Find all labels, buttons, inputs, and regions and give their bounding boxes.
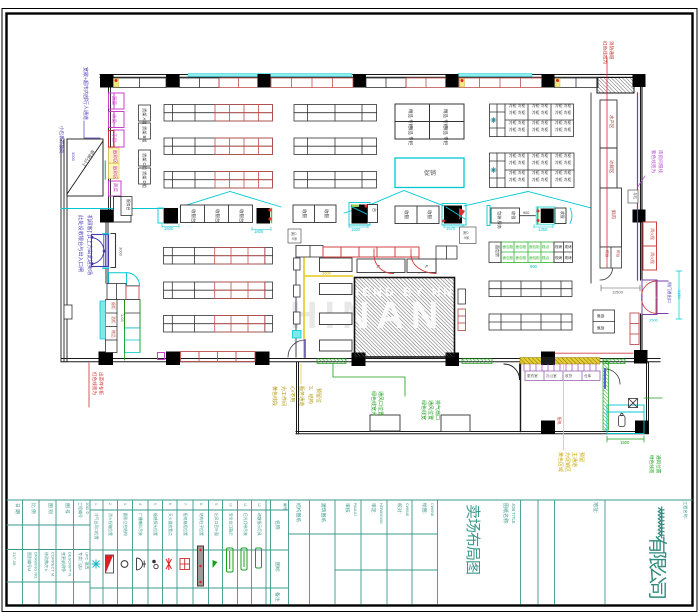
svg-text:黄色区域: 黄色区域: [557, 452, 564, 472]
svg-text:审核:: 审核:: [344, 503, 351, 514]
svg-text:冷柜 冷柜: 冷柜 冷柜: [532, 160, 548, 165]
svg-text:JOB TITLE: JOB TITLE: [511, 503, 516, 524]
svg-text:冷柜 冷柜: 冷柜 冷柜: [532, 177, 548, 182]
svg-text:1350: 1350: [538, 227, 548, 232]
svg-text:主通道: 主通道: [571, 452, 578, 467]
svg-text:灭火器放置点: 灭火器放置点: [168, 513, 173, 536]
svg-text:建筑图纸.: 建筑图纸.: [320, 503, 327, 524]
svg-text:蔬菜: 蔬菜: [111, 96, 118, 105]
svg-text:地址:: 地址:: [592, 502, 599, 513]
svg-text:11500: 11500: [612, 290, 624, 295]
svg-text:审定:: 审定:: [370, 503, 377, 514]
svg-text:收银: 收银: [560, 211, 565, 219]
svg-text:日光灯带吊装: 日光灯带吊装: [243, 513, 248, 536]
svg-text:冷柜 冷柜: 冷柜 冷柜: [509, 170, 525, 175]
svg-text:冷柜 冷柜: 冷柜 冷柜: [532, 153, 548, 158]
svg-text:比 例: 比 例: [30, 503, 37, 514]
svg-text:卖场布局图: 卖场布局图: [464, 504, 481, 574]
svg-text:9.: 9.: [214, 503, 218, 506]
svg-text:机顾客['.]1上方由此进卖场: 机顾客['.]1上方由此进卖场: [86, 215, 94, 275]
svg-text:现烤: 现烤: [565, 244, 573, 249]
svg-text:消火栓箱位置: 消火栓箱位置: [108, 513, 113, 536]
svg-text:服务通道: 服务通道: [298, 386, 305, 406]
svg-text:名称: 名称: [274, 520, 281, 530]
svg-text:服务台: 服务台: [126, 199, 131, 211]
svg-text:此处设收银台与出入口闸: 此处设收银台与出入口闸: [77, 215, 85, 272]
svg-text:红色线宽为: 红色线宽为: [91, 372, 98, 395]
svg-text:收银台: 收银台: [214, 209, 221, 223]
svg-text:鲜肉: 鲜肉: [610, 210, 617, 219]
svg-text:900: 900: [530, 264, 538, 269]
svg-text:消防通道: 消防通道: [608, 41, 615, 60]
svg-text:广播喇叭吊装: 广播喇叭吊装: [138, 513, 143, 536]
svg-text:修改数次 b.: 修改数次 b.: [44, 552, 50, 572]
svg-text:3.: 3.: [123, 503, 127, 506]
svg-text:黄色线段: 黄色线段: [271, 386, 278, 406]
svg-text:疏散指示灯具: 疏散指示灯具: [257, 513, 262, 536]
svg-text:图标: 图标: [274, 562, 281, 572]
svg-text:预留: 预留: [578, 452, 585, 462]
svg-text:绿色线宽: 绿色线宽: [420, 400, 427, 420]
svg-text:冷气出风口位置: 冷气出风口位置: [94, 513, 99, 540]
svg-text:3000: 3000: [71, 152, 76, 162]
svg-text:水产区: 水产区: [608, 115, 615, 129]
svg-text:为工作间: 为工作间: [280, 386, 287, 406]
svg-text:900: 900: [523, 211, 529, 215]
svg-text:面包柜: 面包柜: [516, 244, 527, 249]
svg-text:称台: 称台: [605, 250, 610, 258]
svg-text:冷柜 冷柜: 冷柜 冷柜: [532, 120, 548, 125]
svg-text:货架 B组: 货架 B组: [141, 126, 148, 143]
svg-text:面包柜: 面包柜: [503, 244, 514, 249]
svg-text:现烤: 现烤: [555, 244, 563, 249]
svg-text:精品 专柜: 精品 专柜: [407, 126, 414, 146]
svg-text:蔬菜: 蔬菜: [112, 183, 119, 192]
svg-text:图别编号M.: 图别编号M.: [27, 552, 33, 572]
svg-text:收银台: 收银台: [190, 209, 197, 223]
svg-text:面包柜: 面包柜: [516, 255, 527, 260]
svg-text:心/不用: 心/不用: [289, 386, 296, 402]
svg-text:1500: 1500: [649, 318, 659, 323]
svg-text:3150: 3150: [677, 290, 682, 300]
svg-text:仓库: 仓库: [584, 373, 592, 378]
svg-text:CWKNE: CWKNE: [405, 503, 409, 517]
svg-text:通风口位置: 通风口位置: [377, 391, 384, 416]
svg-text:8.: 8.: [199, 503, 203, 506]
svg-text:收银: 收银: [426, 210, 433, 219]
svg-text:紫色线宽为: 紫色线宽为: [650, 150, 657, 173]
svg-text:冷柜 冷柜: 冷柜 冷柜: [555, 103, 571, 108]
svg-text:图 别: 图 别: [47, 503, 54, 514]
svg-text:1.: 1.: [94, 503, 98, 506]
svg-text:3、结构: 3、结构: [307, 386, 314, 404]
svg-text:烟柜: 烟柜: [111, 302, 116, 310]
svg-text:绿色线宽为: 绿色线宽为: [370, 391, 377, 416]
svg-text:11: 11: [243, 503, 247, 507]
svg-text:冷柜 冷柜: 冷柜 冷柜: [555, 177, 571, 182]
svg-text:现烤: 现烤: [565, 255, 573, 260]
svg-text:JOB ②: JOB ②: [85, 502, 90, 515]
svg-text:货架 D组: 货架 D组: [141, 171, 148, 188]
svg-text:2.: 2.: [108, 503, 112, 506]
svg-text:酒柜: 酒柜: [111, 316, 116, 324]
svg-text:精品 专柜: 精品 专柜: [442, 126, 449, 146]
svg-text:HEFANGXIN: HEFANGXIN: [379, 503, 383, 524]
svg-text:排气扇口: 排气扇口: [434, 400, 441, 420]
svg-text:3000: 3000: [119, 247, 124, 257]
svg-text:收银: 收银: [301, 209, 308, 218]
svg-text:货架 C组: 货架 C组: [141, 153, 148, 170]
svg-text:通风位置: 通风位置: [427, 400, 434, 420]
svg-text:散称区: 散称区: [112, 166, 119, 180]
svg-text:6.: 6.: [168, 503, 172, 506]
svg-text:宽0: 宽0: [291, 231, 297, 236]
svg-text:货架 A组: 货架 A组: [141, 108, 148, 125]
svg-text:冷柜 冷柜: 冷柜 冷柜: [509, 127, 525, 132]
svg-text:小包裹存放处: 小包裹存放处: [58, 126, 65, 154]
svg-text:冷柜 冷柜: 冷柜 冷柜: [509, 177, 525, 182]
svg-text:图纸名称:: 图纸名称:: [502, 503, 509, 524]
svg-text:DRAWING NO.: DRAWING NO.: [34, 552, 39, 579]
svg-text:冷柜 冷柜: 冷柜 冷柜: [509, 110, 525, 115]
svg-text:5.: 5.: [153, 503, 157, 506]
svg-text:冷柜 冷柜: 冷柜 冷柜: [555, 120, 571, 125]
svg-text:CORRECT M.: CORRECT M.: [51, 552, 56, 577]
svg-text:散称区: 散称区: [112, 150, 119, 164]
svg-text:1500: 1500: [620, 440, 630, 445]
svg-text:糕点: 糕点: [542, 255, 550, 260]
svg-text:备注: 备注: [274, 592, 281, 602]
svg-text:↗: ↗: [424, 264, 428, 270]
svg-text:冷柜 冷柜: 冷柜 冷柜: [555, 160, 571, 165]
svg-text:糕点: 糕点: [542, 244, 550, 249]
svg-text:********有限公司: ********有限公司: [646, 506, 668, 600]
svg-text:工程编号: 工程编号: [78, 502, 84, 518]
svg-text:绘图:: 绘图:: [421, 503, 428, 514]
svg-text:面包柜: 面包柜: [529, 244, 540, 249]
svg-text:冷柜 冷柜: 冷柜 冷柜: [555, 170, 571, 175]
svg-text:台: 台: [372, 208, 378, 212]
svg-text:.9米: .9米: [291, 236, 298, 241]
svg-text:红色线宽为: 红色线宽为: [602, 41, 609, 64]
svg-text:库房间隔线: 库房间隔线: [657, 150, 664, 173]
svg-text:冷柜 冷柜: 冷柜 冷柜: [555, 110, 571, 115]
svg-text:更衣室: 更衣室: [527, 373, 538, 378]
svg-text:DESCRIPT N.: DESCRIPT N.: [68, 552, 73, 577]
svg-text:包装 服务: 包装 服务: [496, 211, 503, 230]
svg-text:冷柜 冷柜: 冷柜 冷柜: [532, 103, 548, 108]
svg-text:售饼: 售饼: [597, 314, 605, 319]
svg-text:出菜样专柜: 出菜样专柜: [98, 372, 105, 395]
svg-text:侧门进出口: 侧门进出口: [666, 282, 673, 303]
svg-text:消火栓: 消火栓: [650, 252, 656, 264]
svg-text:收银: 收银: [403, 210, 410, 219]
svg-text:促销: 促销: [424, 169, 436, 177]
svg-text:存包: 存包: [633, 193, 638, 200]
svg-text:消火栓: 消火栓: [650, 228, 656, 240]
svg-text:宽敞+超市内部行人通道: 宽敞+超市内部行人通道: [82, 67, 89, 120]
svg-text:结构柱子位置: 结构柱子位置: [199, 513, 204, 536]
svg-text:配电箱柜位置: 配电箱柜位置: [183, 513, 188, 536]
svg-text:冷柜 冷柜: 冷柜 冷柜: [532, 110, 548, 115]
svg-text:安全出口指示: 安全出口指示: [229, 513, 234, 536]
svg-text:4.: 4.: [138, 503, 142, 506]
svg-text:日 期: 日 期: [14, 503, 20, 514]
svg-text:.9米: .9米: [463, 235, 470, 240]
svg-text:结构图纸.: 结构图纸.: [295, 503, 302, 524]
svg-text:面包柜: 面包柜: [529, 255, 540, 260]
svg-text:校对:: 校对:: [396, 503, 403, 514]
svg-text:12: 12: [257, 503, 261, 507]
svg-text:圆形立柱结构: 圆形立柱结构: [123, 513, 128, 536]
svg-text:办公室: 办公室: [546, 373, 557, 378]
svg-text:烟感探头位置: 烟感探头位置: [153, 513, 158, 536]
svg-text:10: 10: [229, 503, 233, 507]
svg-text:为促销区: 为促销区: [564, 452, 571, 472]
svg-text:专卖门店2: 专卖门店2: [78, 552, 84, 571]
svg-text:面包房: 面包房: [495, 245, 501, 257]
svg-text:配电: 配电: [557, 417, 562, 425]
svg-text:UPC 批改: UPC 批改: [85, 552, 91, 570]
svg-text:冷柜 冷柜: 冷柜 冷柜: [555, 127, 571, 132]
svg-text:图 号: 图 号: [64, 503, 70, 514]
svg-text:冷柜 冷柜: 冷柜 冷柜: [532, 170, 548, 175]
svg-text:收货: 收货: [565, 373, 573, 378]
svg-text:冰鲜区: 冰鲜区: [608, 160, 615, 174]
svg-text:冷柜 冷柜: 冷柜 冷柜: [509, 153, 525, 158]
svg-text:出风口百叶窗: 出风口百叶窗: [214, 513, 219, 536]
svg-text:CWKNE: CWKNE: [430, 503, 434, 517]
svg-text:冷柜 冷柜: 冷柜 冷柜: [509, 160, 525, 165]
svg-text:PAULIU: PAULIU: [353, 503, 357, 516]
svg-text:工程名称:: 工程名称:: [682, 501, 689, 519]
svg-text:冷柜 冷柜: 冷柜 冷柜: [509, 120, 525, 125]
svg-text:变更说明争: 变更说明争: [61, 552, 67, 572]
svg-text:通风位置: 通风位置: [655, 455, 662, 474]
svg-text:7.: 7.: [183, 503, 187, 506]
svg-text:预留位: 预留位: [315, 388, 322, 403]
svg-text:赠品: 赠品: [111, 330, 116, 338]
svg-text:绿色线宽: 绿色线宽: [648, 455, 655, 474]
svg-text:1.03: 1.03: [120, 314, 125, 323]
svg-text:冷柜 冷柜: 冷柜 冷柜: [532, 127, 548, 132]
svg-text:1500: 1500: [351, 227, 361, 232]
svg-text:收银: 收银: [323, 209, 330, 218]
svg-text:售饼: 售饼: [597, 326, 605, 331]
svg-text:现烤: 现烤: [555, 255, 563, 260]
svg-text:称台: 称台: [616, 250, 621, 258]
svg-text:宽0: 宽0: [463, 230, 469, 235]
svg-text:编号: 编号: [283, 503, 288, 511]
svg-text:面包柜: 面包柜: [503, 255, 514, 260]
svg-text:冷柜 冷柜: 冷柜 冷柜: [555, 153, 571, 158]
svg-text:收银: 收银: [510, 211, 517, 220]
svg-text:水果: 水果: [111, 114, 118, 123]
svg-text:31/7.08: 31/7.08: [12, 552, 17, 566]
svg-text:冷柜 冷柜: 冷柜 冷柜: [509, 103, 525, 108]
svg-text:收银台: 收银台: [238, 209, 245, 223]
